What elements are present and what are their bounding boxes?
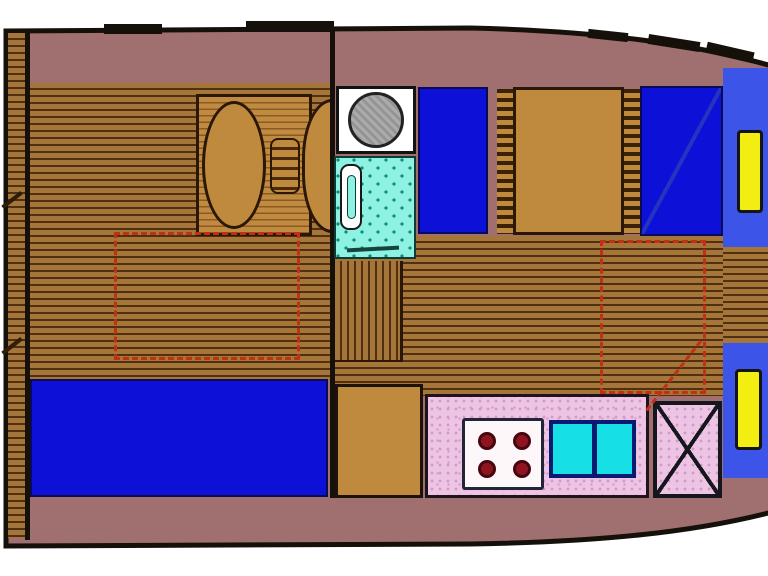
table-pedestal xyxy=(270,138,300,194)
ladder-rungs-left xyxy=(497,89,513,234)
stove-burner xyxy=(478,460,496,478)
roof-hatch-outline-left xyxy=(114,232,300,360)
saloon-sofa-berth xyxy=(30,379,328,497)
stove-burner xyxy=(513,460,531,478)
stern-deck-planks xyxy=(8,33,25,538)
toilet xyxy=(340,164,362,230)
roof-fitting xyxy=(104,24,162,34)
bow-walkway-planks xyxy=(723,247,768,343)
berth-starboard xyxy=(640,86,723,236)
toilet-bowl xyxy=(347,175,356,219)
sink-divider xyxy=(592,424,597,474)
ladder-rungs-right xyxy=(624,89,640,234)
bow-deck-hatch-bottom xyxy=(735,369,762,450)
bathroom-bulkhead xyxy=(330,30,335,498)
saloon-table xyxy=(202,101,266,229)
washbasin xyxy=(348,92,404,148)
berth-port xyxy=(418,87,488,234)
boat-floorplan xyxy=(0,0,768,576)
berth-chest xyxy=(513,87,624,235)
sink-double xyxy=(549,420,636,478)
roof-fitting xyxy=(246,21,334,32)
stove-burner xyxy=(478,432,496,450)
roof-hatch-outline-right xyxy=(600,240,706,394)
stove xyxy=(462,418,544,490)
icebox-crossed xyxy=(653,401,722,498)
stove-burner xyxy=(513,432,531,450)
bow-deck-hatch-top xyxy=(737,130,763,213)
galley-cupboard xyxy=(335,384,423,498)
companionway-steps xyxy=(335,261,403,362)
